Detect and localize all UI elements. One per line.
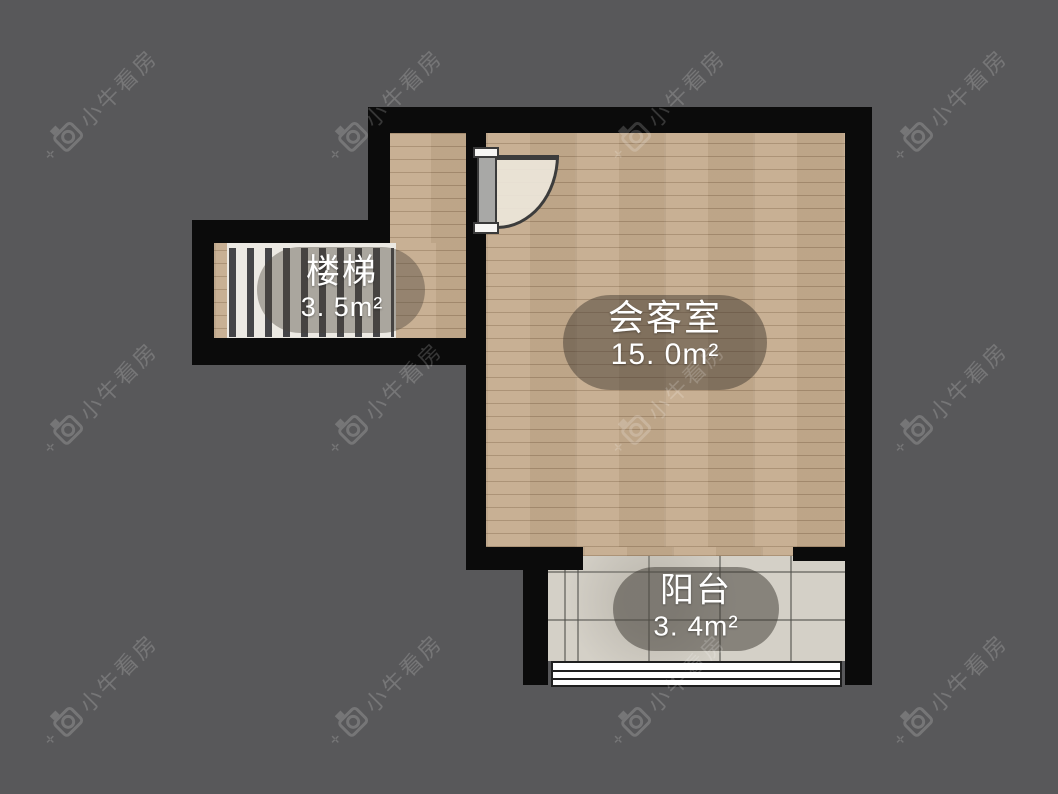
meeting-area: 15. 0m² xyxy=(611,338,720,373)
balcony-area: 3. 4m² xyxy=(653,610,738,642)
watermark-text: 小牛看房 xyxy=(71,626,164,719)
watermark: ✛小牛看房 xyxy=(886,41,1015,170)
watermark-spark-icon: ✛ xyxy=(327,439,344,456)
watermark-spark-icon: ✛ xyxy=(892,146,909,163)
watermark-camera-icon xyxy=(51,705,85,739)
watermark-camera-icon xyxy=(51,413,85,447)
floorplan-canvas: 楼梯 3. 5m² 会客室 15. 0m² 阳台 3. 4m² ✛小牛看房 ✛小… xyxy=(0,0,1058,794)
watermark-spark-icon: ✛ xyxy=(327,731,344,748)
wall-top xyxy=(368,107,872,133)
watermark-camera-icon xyxy=(901,705,935,739)
room-label-balcony: 阳台 3. 4m² xyxy=(653,571,738,642)
watermark-camera-icon xyxy=(336,705,370,739)
watermark-camera-icon xyxy=(51,120,85,154)
watermark-camera-icon xyxy=(901,120,935,154)
watermark: ✛小牛看房 xyxy=(36,626,165,755)
watermark-spark-icon: ✛ xyxy=(42,146,59,163)
watermark-camera-icon xyxy=(336,120,370,154)
watermark-spark-icon: ✛ xyxy=(610,731,627,748)
door-jamb-top xyxy=(473,147,499,158)
wall-stairs-bottom xyxy=(192,338,486,365)
watermark: ✛小牛看房 xyxy=(886,334,1015,463)
watermark-spark-icon: ✛ xyxy=(327,146,344,163)
stairs-area: 3. 5m² xyxy=(301,292,384,323)
watermark-spark-icon: ✛ xyxy=(892,731,909,748)
room-label-meeting: 会客室 15. 0m² xyxy=(608,297,722,373)
watermark: ✛小牛看房 xyxy=(886,626,1015,755)
meeting-name: 会客室 xyxy=(608,297,722,338)
watermark-camera-icon xyxy=(336,413,370,447)
watermark-camera-icon xyxy=(619,705,653,739)
balcony-threshold xyxy=(583,547,793,556)
stairs-name: 楼梯 xyxy=(306,253,378,292)
watermark: ✛小牛看房 xyxy=(321,626,450,755)
watermark-camera-icon xyxy=(901,413,935,447)
door-jamb-bottom xyxy=(473,222,499,234)
watermark-text: 小牛看房 xyxy=(921,626,1014,719)
balcony-name: 阳台 xyxy=(660,571,732,610)
room-label-stairs: 楼梯 3. 5m² xyxy=(301,253,384,323)
door-slab xyxy=(477,156,497,224)
watermark: ✛小牛看房 xyxy=(36,334,165,463)
watermark: ✛小牛看房 xyxy=(36,41,165,170)
wall-main-bottom-right-stub xyxy=(793,547,845,561)
watermark-spark-icon: ✛ xyxy=(42,439,59,456)
watermark-text: 小牛看房 xyxy=(71,41,164,134)
wall-stairs-top xyxy=(192,220,390,243)
watermark-spark-icon: ✛ xyxy=(892,439,909,456)
watermark-spark-icon: ✛ xyxy=(42,731,59,748)
watermark-text: 小牛看房 xyxy=(921,41,1014,134)
watermark-text: 小牛看房 xyxy=(71,334,164,427)
wall-balcony-left xyxy=(523,570,548,685)
watermark-text: 小牛看房 xyxy=(921,334,1014,427)
watermark-text: 小牛看房 xyxy=(356,626,449,719)
balcony-window xyxy=(551,661,842,687)
wall-right xyxy=(845,107,872,685)
wall-main-bottom-left-stub xyxy=(466,547,583,570)
